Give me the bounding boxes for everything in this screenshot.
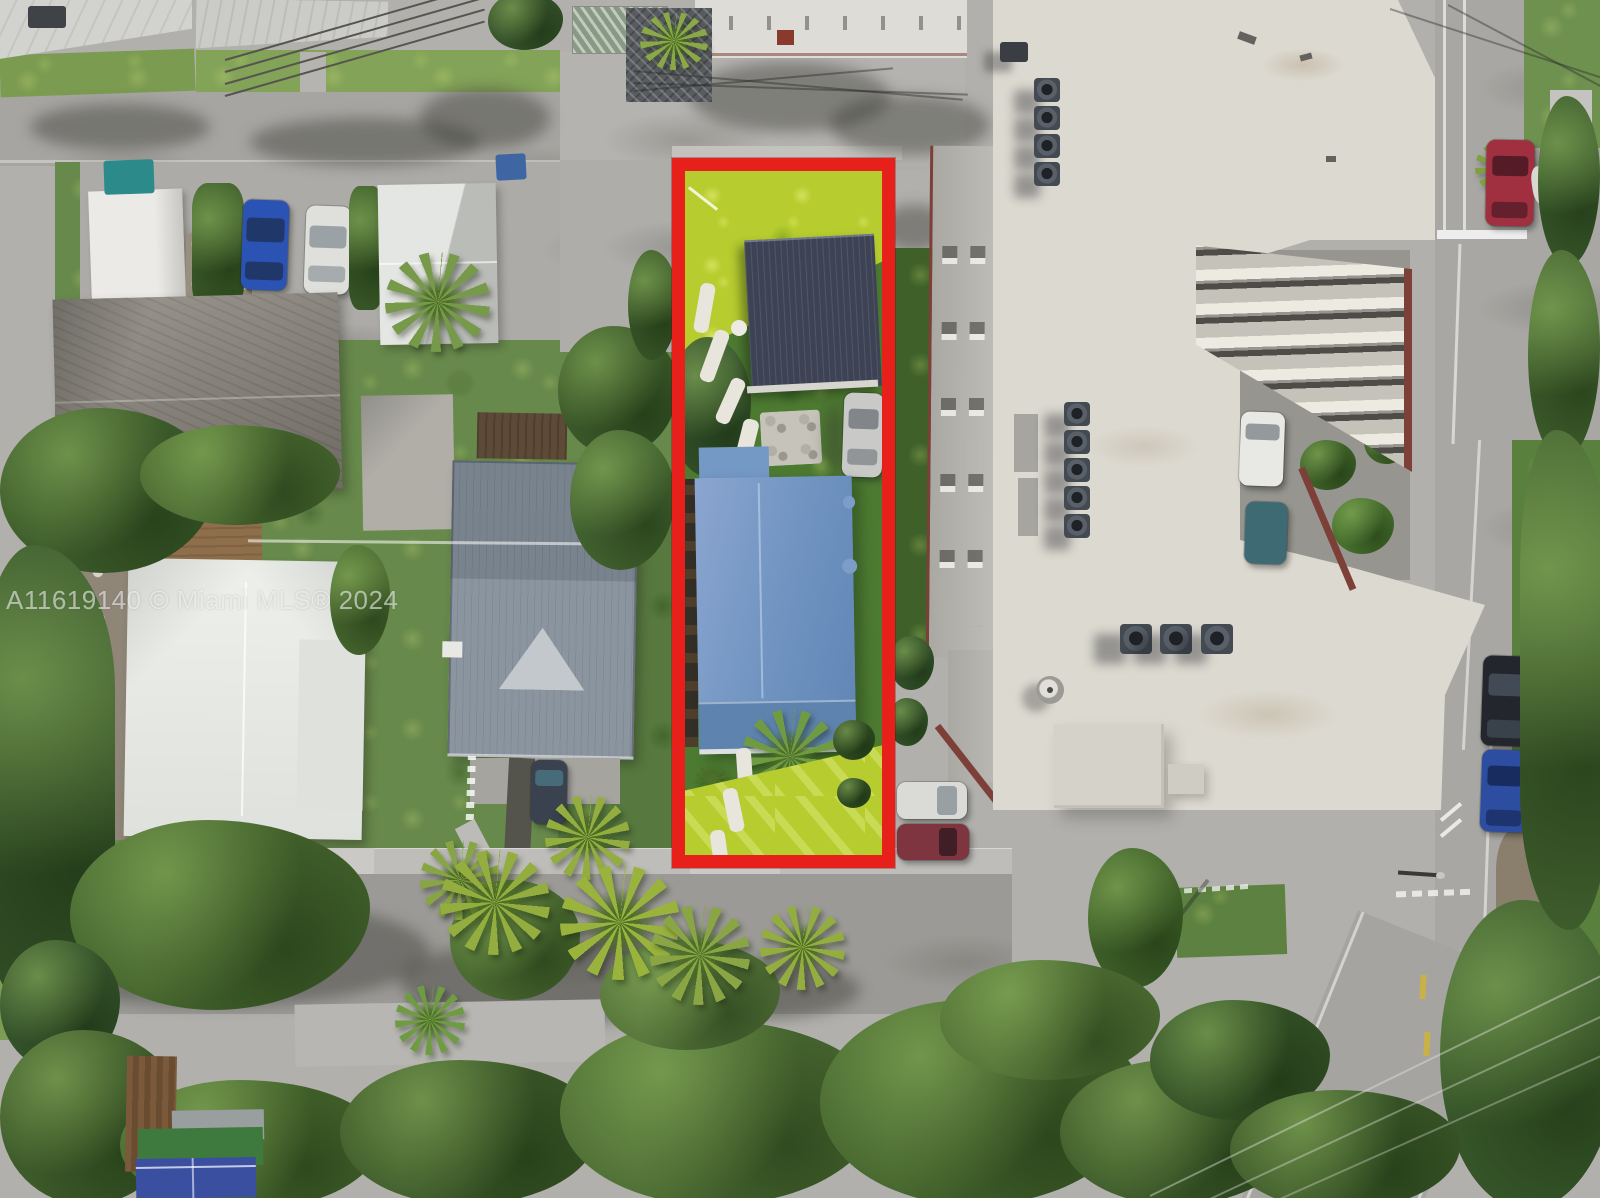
ac-unit-column: [1034, 74, 1060, 190]
grass-island: [1175, 884, 1287, 958]
sport-court: [136, 1157, 257, 1198]
ac-unit: [1034, 78, 1060, 102]
tree-canopy: [1230, 1090, 1460, 1198]
yellow-dash: [1423, 1032, 1430, 1056]
white-shed: [88, 188, 186, 301]
teal-dumpster: [103, 159, 154, 195]
grass-strip-top: [196, 50, 560, 92]
solar-panel-roof: [744, 234, 882, 393]
roof-ridge: [241, 582, 247, 816]
tree-canopy: [1520, 430, 1600, 930]
roof-vent: [1326, 156, 1336, 162]
blue-dumpster: [495, 153, 526, 181]
mls-watermark: A11619140 © Miami MLS® 2024: [6, 585, 398, 616]
chimney: [442, 641, 462, 657]
roof-vent-box: [1000, 42, 1028, 62]
ac-unit: [1064, 514, 1090, 538]
palm-tree: [760, 905, 845, 990]
palm-tree: [395, 985, 465, 1055]
ac-unit: [1034, 134, 1060, 158]
aerial-photo: A11619140 © Miami MLS® 2024: [0, 0, 1600, 1198]
ac-unit: [1064, 430, 1090, 454]
road-shadow: [420, 88, 550, 148]
ac-unit: [1120, 624, 1152, 654]
stop-bar: [1437, 230, 1527, 239]
road-shadow: [30, 104, 210, 150]
palm-tree: [440, 850, 550, 955]
ac-unit: [1160, 624, 1192, 654]
trailer-building: [695, 0, 967, 58]
street-light-head: [1436, 872, 1445, 879]
ac-unit: [28, 6, 66, 28]
white-car: [897, 782, 967, 819]
ac-unit: [1201, 624, 1233, 654]
court-line: [136, 1165, 256, 1169]
brown-deck: [477, 412, 568, 460]
ac-unit: [1064, 458, 1090, 482]
white-van: [1239, 411, 1286, 486]
roof-ridge: [757, 483, 763, 698]
palm-tree: [385, 252, 490, 352]
palm-tree: [640, 12, 708, 70]
maroon-car: [897, 824, 969, 860]
yellow-dash: [1419, 975, 1426, 999]
patio-stones: [760, 409, 823, 466]
lane-line: [1443, 0, 1446, 230]
tree-canopy: [488, 0, 563, 50]
red-car: [1485, 140, 1534, 227]
building-west-wall: [926, 146, 1002, 659]
white-table: [731, 320, 747, 336]
grass-strip-top-left: [0, 49, 196, 98]
roof-vent: [843, 496, 855, 509]
ac-unit-column: [1064, 398, 1090, 542]
ac-unit: [1064, 402, 1090, 426]
hedge: [192, 183, 244, 311]
gable-highlight: [499, 627, 586, 691]
roof-annex: [1054, 724, 1164, 808]
ac-unit: [1064, 486, 1090, 510]
window-column: [939, 196, 958, 626]
satellite-dish: [1036, 676, 1064, 704]
roof-paint-patch: [1018, 478, 1038, 536]
window-column: [967, 196, 986, 626]
property-lot-outline: [672, 158, 895, 868]
maroon-trim: [1404, 236, 1412, 472]
teal-car: [1244, 501, 1288, 564]
roof-paint-patch: [1014, 414, 1038, 472]
gray-annex-roof: [361, 394, 455, 531]
palm-tree: [650, 905, 750, 1005]
white-car: [303, 205, 351, 295]
tree-canopy: [1440, 900, 1600, 1198]
court-line: [192, 1158, 195, 1198]
door: [777, 30, 794, 45]
blue-car: [240, 199, 289, 291]
dish-feed: [1047, 687, 1053, 693]
ac-unit: [1034, 106, 1060, 130]
window-band: [695, 16, 967, 30]
bush: [890, 636, 934, 690]
tree-canopy: [340, 1060, 600, 1198]
roof-vent: [842, 559, 857, 574]
trim-line: [695, 53, 967, 56]
roof-box: [1168, 764, 1204, 794]
silver-car: [842, 392, 885, 477]
ac-unit: [1034, 162, 1060, 186]
house-wing: [297, 639, 366, 810]
ac-unit-row: [1120, 624, 1237, 659]
